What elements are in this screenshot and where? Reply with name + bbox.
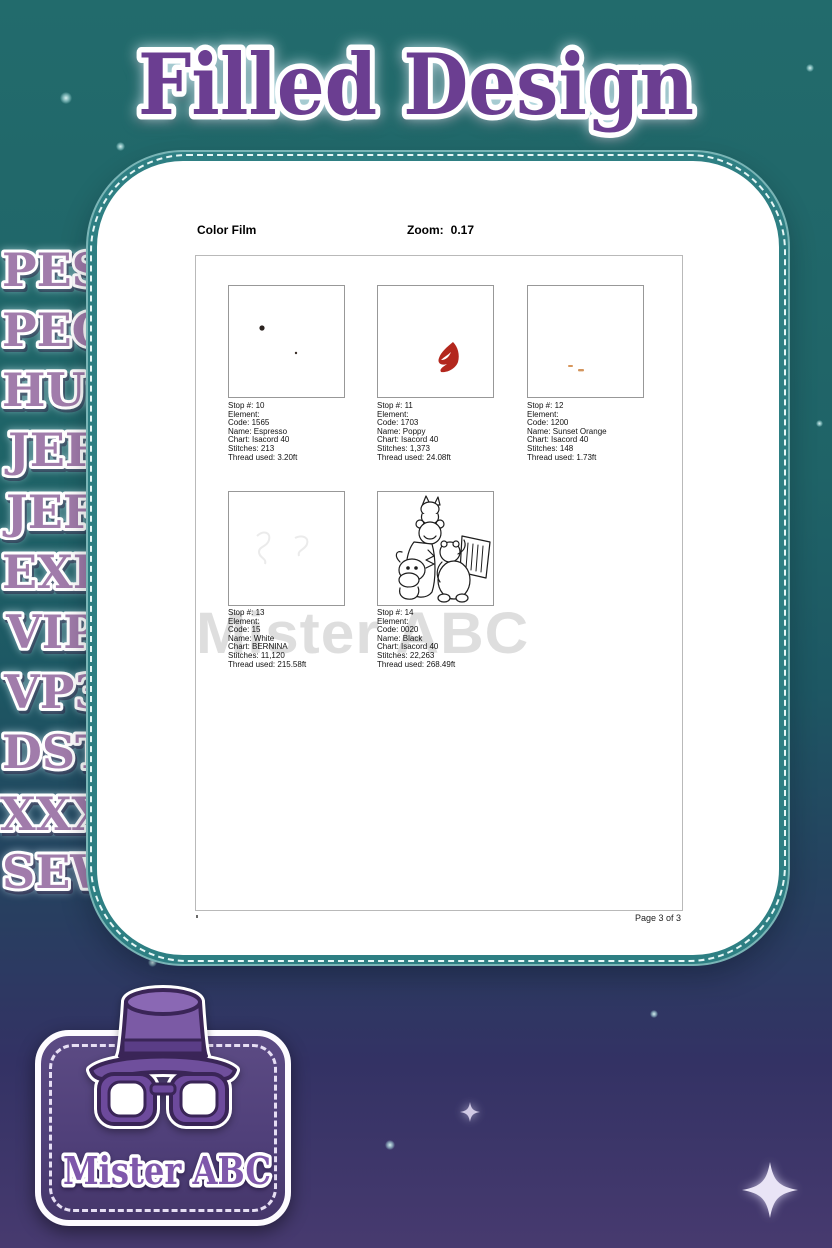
viewer-card: Color Film Zoom:0.17 Mister ABC — [88, 152, 788, 964]
sparkle-icon-large — [742, 1162, 798, 1218]
stop-block-14: Stop #: 14 Element: Code: 0020 Name: Bla… — [377, 609, 522, 669]
espresso-dots-icon — [229, 286, 344, 397]
star-dot — [806, 64, 814, 72]
page-title-art: Filled Design — [66, 12, 766, 152]
stop-line: Thread used: 215.58ft — [228, 661, 373, 670]
white-faint-sketch-icon — [229, 492, 344, 605]
brand-name: Mister ABC — [63, 1148, 271, 1193]
stop-block-13: Stop #: 13 Element: Code: 15 Name: White… — [228, 609, 373, 669]
page-title-wrap: Filled Design — [66, 12, 766, 152]
star-dot — [650, 1010, 658, 1018]
zoom-value: 0.17 — [451, 223, 474, 237]
print-artifact — [196, 915, 198, 918]
brand-name-art: Mister ABC — [47, 1140, 287, 1200]
stop-line: Thread used: 24.08ft — [377, 454, 522, 463]
sparkle-icon-small — [460, 1102, 480, 1122]
format-label-jef: JEF — [4, 423, 98, 477]
star-dot — [816, 420, 823, 427]
stop-block-11: Stop #: 11 Element: Code: 1703 Name: Pop… — [377, 402, 522, 462]
page-title: Filled Design — [138, 35, 694, 134]
stop-block-12: Stop #: 12 Element: Code: 1200 Name: Sun… — [527, 402, 672, 462]
thumbnail-stop-10 — [228, 285, 345, 398]
thumbnail-stop-13 — [228, 491, 345, 606]
thumbnail-stop-12 — [527, 285, 644, 398]
stop-line: Thread used: 3.20ft — [228, 454, 373, 463]
view-name-label: Color Film — [197, 223, 256, 237]
sunset-orange-marks-icon — [528, 286, 643, 397]
stop-line: Thread used: 1.73ft — [527, 454, 672, 463]
top-hat-glasses-icon — [72, 982, 254, 1140]
star-dot — [385, 1140, 395, 1150]
brand-name-wrap: Mister ABC — [47, 1140, 287, 1200]
pooh-characters-sketch-icon — [378, 492, 493, 605]
poster-canvas: Filled Design PES PEC HUS JEF JEF+ EXP V… — [0, 0, 832, 1248]
stop-block-10: Stop #: 10 Element: Code: 1565 Name: Esp… — [228, 402, 373, 462]
page-number: Page 3 of 3 — [481, 913, 681, 923]
zoom-label: Zoom: — [407, 223, 444, 237]
format-label-vip: VIP — [5, 605, 98, 659]
zoom-indicator: Zoom:0.17 — [407, 223, 474, 237]
thumbnail-stop-14 — [377, 491, 494, 606]
poppy-swoosh-icon — [378, 286, 493, 397]
stop-line: Thread used: 268.49ft — [377, 661, 522, 670]
document-page: Mister ABC Stop #: — [195, 255, 683, 911]
thumbnail-stop-11 — [377, 285, 494, 398]
